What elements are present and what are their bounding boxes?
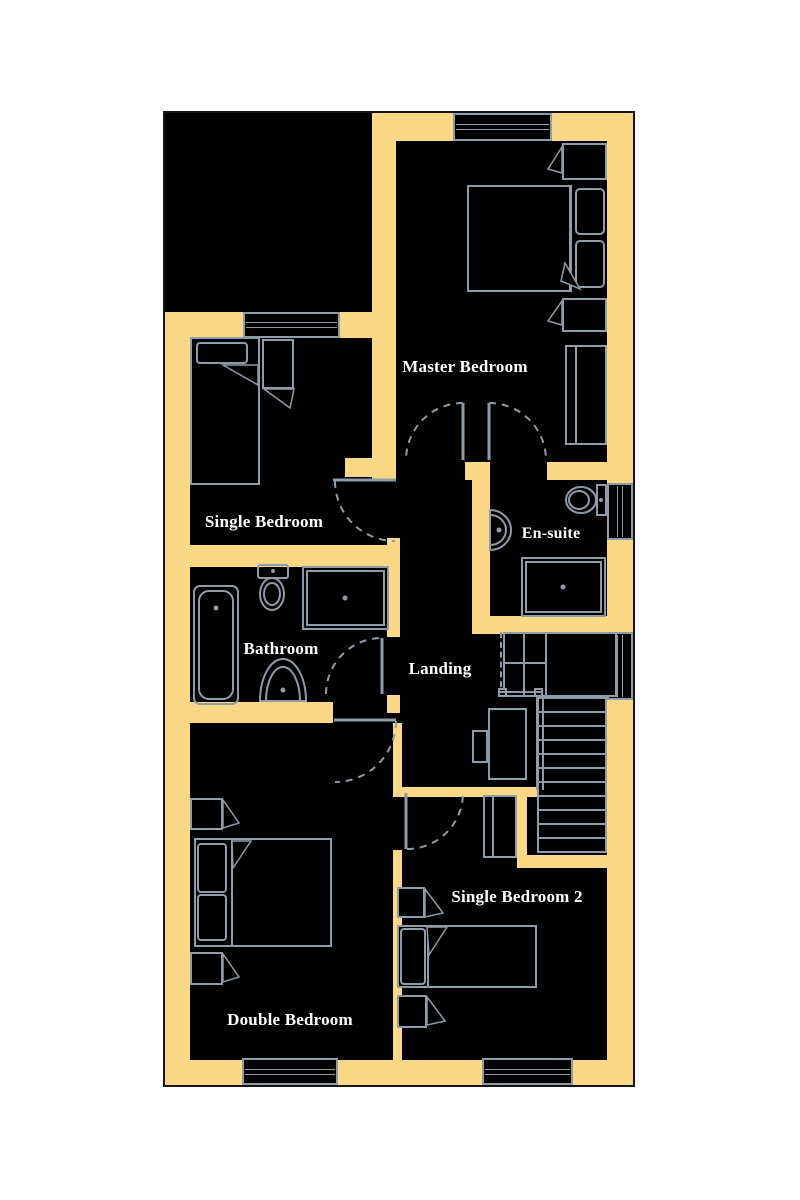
linen-fold <box>223 365 258 385</box>
floor-plan: Master Bedroom Single Bedroom En-suite B… <box>163 111 635 1087</box>
door-swing-arc <box>406 403 463 460</box>
door-swing-arc <box>335 481 395 541</box>
room-label-single-bedroom: Single Bedroom <box>205 512 323 532</box>
linen-fold <box>223 954 239 982</box>
basin-drain <box>281 688 286 693</box>
linen-fold <box>427 997 445 1025</box>
linen-fold <box>264 389 294 408</box>
linen-fold <box>548 301 562 325</box>
door-swing-arc <box>489 403 546 460</box>
room-label-double-bedroom: Double Bedroom <box>227 1010 353 1030</box>
room-label-landing: Landing <box>409 659 472 679</box>
room-label-bathroom: Bathroom <box>244 639 319 659</box>
bathtub-drain <box>214 606 219 611</box>
basin-inner <box>266 667 300 701</box>
door-swing-arc <box>326 638 382 694</box>
room-label-single-bedroom-2: Single Bedroom 2 <box>451 887 582 907</box>
linen-fold <box>548 147 562 173</box>
basin-drain <box>497 528 502 533</box>
room-label-master-bedroom: Master Bedroom <box>402 357 527 377</box>
toilet-bowl-inner <box>264 583 280 605</box>
linen-fold <box>425 889 443 917</box>
toilet-bowl-inner <box>569 491 589 509</box>
shower-drain <box>561 585 566 590</box>
shower-drain <box>343 596 348 601</box>
door-swing-arc <box>407 793 463 849</box>
door-swing-arc <box>335 721 396 782</box>
bathtub <box>194 586 238 704</box>
toilet-flush <box>599 498 603 502</box>
toilet-flush <box>271 569 275 573</box>
linen-fold <box>223 800 239 828</box>
linen-fold <box>232 841 251 868</box>
fixtures-overlay <box>165 113 633 1085</box>
floor-plan-page: Master Bedroom Single Bedroom En-suite B… <box>0 0 800 1200</box>
linen-fold <box>427 927 447 955</box>
room-label-en-suite: En-suite <box>522 525 581 543</box>
